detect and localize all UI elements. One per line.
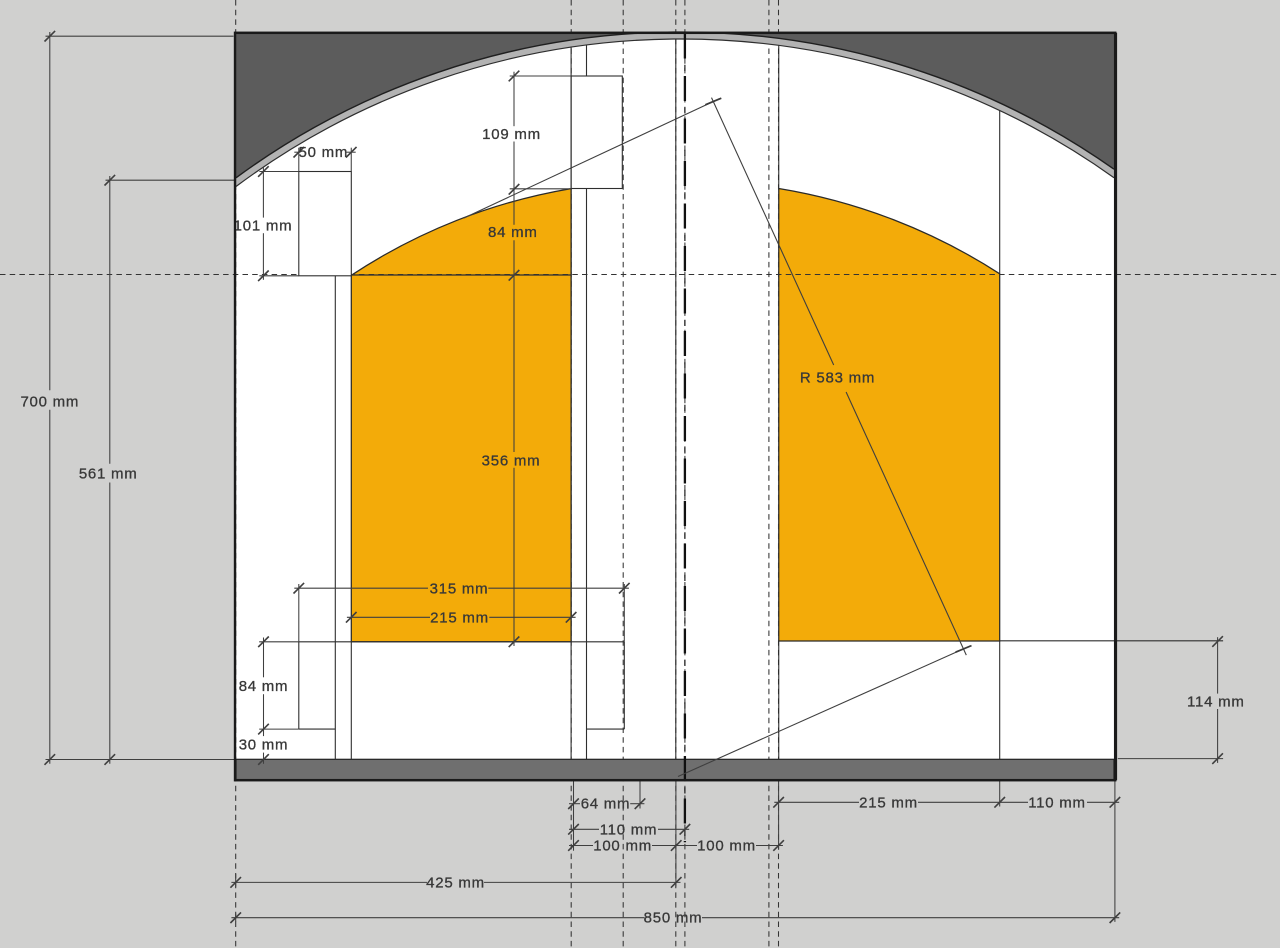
- svg-text:315 mm: 315 mm: [430, 580, 489, 597]
- svg-text:84 mm: 84 mm: [239, 678, 289, 695]
- svg-text:110 mm: 110 mm: [600, 821, 658, 838]
- svg-text:R 583 mm: R 583 mm: [800, 370, 875, 387]
- svg-text:356 mm: 356 mm: [482, 452, 541, 469]
- svg-text:109 mm: 109 mm: [482, 126, 541, 143]
- svg-text:101 mm: 101 mm: [234, 217, 293, 234]
- svg-text:561 mm: 561 mm: [79, 465, 138, 482]
- svg-text:84 mm: 84 mm: [488, 224, 538, 241]
- svg-text:30 mm: 30 mm: [239, 736, 289, 753]
- svg-text:215 mm: 215 mm: [430, 609, 489, 626]
- svg-text:700 mm: 700 mm: [20, 394, 79, 411]
- svg-text:850 mm: 850 mm: [644, 910, 703, 927]
- svg-text:64 mm: 64 mm: [581, 796, 631, 813]
- svg-text:50 mm: 50 mm: [299, 144, 349, 161]
- svg-text:100 mm: 100 mm: [593, 838, 652, 855]
- svg-text:215 mm: 215 mm: [859, 794, 918, 811]
- svg-text:114 mm: 114 mm: [1187, 693, 1245, 710]
- svg-text:100 mm: 100 mm: [697, 838, 756, 855]
- svg-text:110 mm: 110 mm: [1028, 794, 1086, 811]
- svg-text:425 mm: 425 mm: [426, 874, 485, 891]
